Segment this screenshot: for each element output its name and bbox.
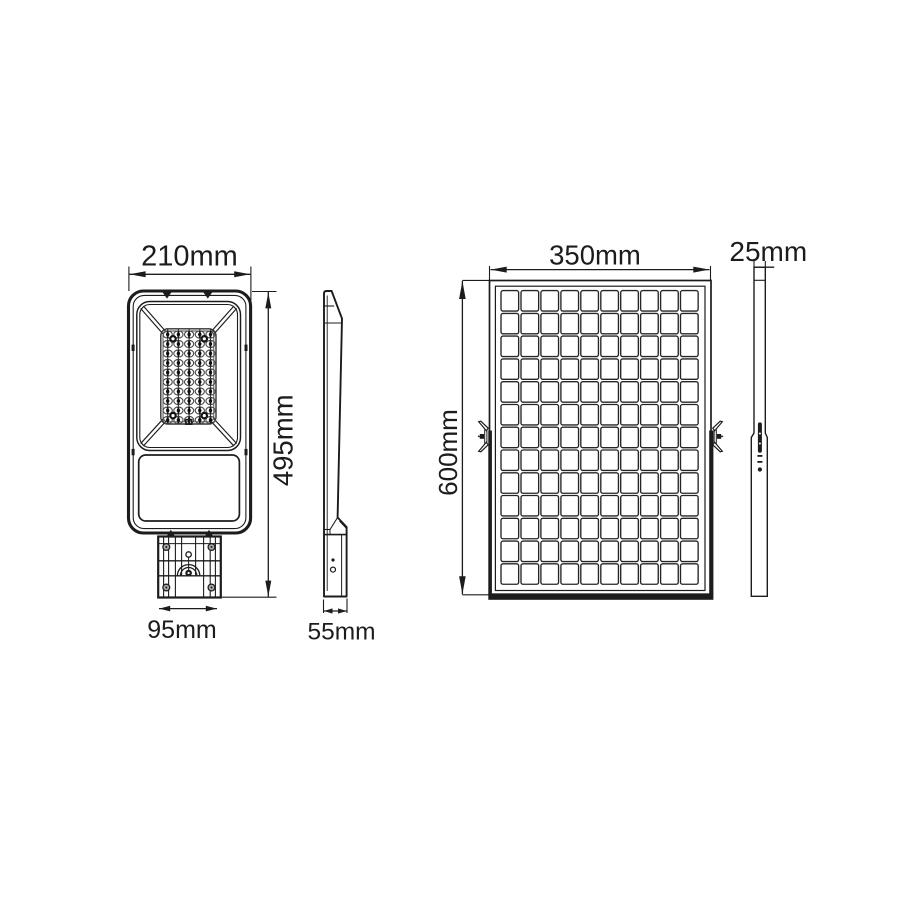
svg-text:350mm: 350mm [549,240,641,271]
svg-text:210mm: 210mm [141,241,238,273]
svg-text:95mm: 95mm [147,616,216,644]
svg-text:25mm: 25mm [729,236,807,267]
svg-text:495mm: 495mm [267,394,298,486]
svg-text:600mm: 600mm [433,409,463,496]
svg-text:55mm: 55mm [307,619,375,646]
